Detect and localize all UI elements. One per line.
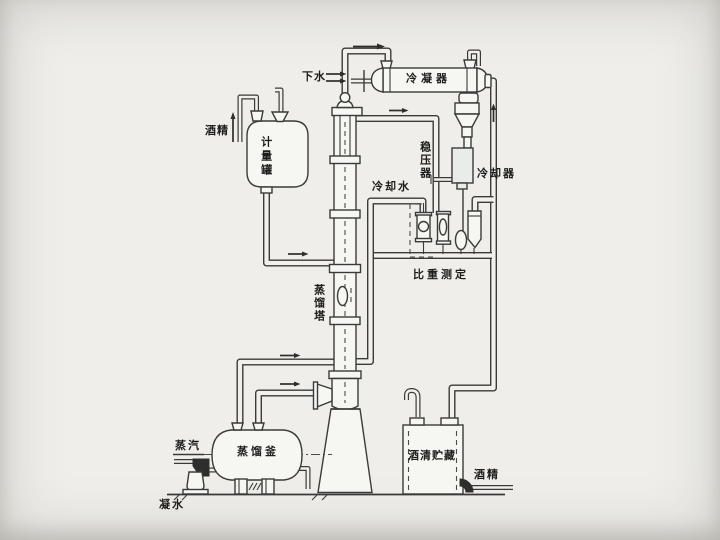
column-top-plate: [332, 108, 362, 116]
diagram-canvas: [0, 0, 720, 540]
flow-arrow: [280, 353, 301, 358]
column-base-pedestal: [314, 379, 373, 493]
reducer-stack: [455, 93, 479, 148]
column-sight-glass: [338, 287, 348, 306]
label-cooler: 冷却器: [477, 168, 516, 181]
label-steam: 蒸汽: [175, 440, 201, 453]
label-drain-water: 下水: [302, 71, 326, 84]
support-hatching: [249, 483, 261, 490]
label-storage: 酒清贮藏: [408, 450, 456, 463]
label-cooling-water: 冷却水: [372, 181, 411, 194]
flow-arrow-alcohol-feed: [231, 112, 236, 142]
column-top-knob: [340, 93, 350, 103]
label-condenser: 冷凝器: [406, 73, 451, 86]
flow-arrow: [280, 382, 301, 387]
steam-trap-pot: [187, 472, 204, 490]
flow-arrow: [389, 108, 409, 113]
label-column: 蒸馏塔: [312, 284, 325, 323]
label-alcohol-feed: 酒精: [205, 125, 229, 138]
sight-glass-window: [419, 222, 429, 232]
label-measuring-tank: 计量罐: [259, 136, 272, 178]
cooler-vessel: [452, 148, 473, 189]
ground-line: [167, 495, 505, 501]
measuring-tank-vessel: [247, 111, 308, 193]
label-condensate: 凝水: [159, 499, 185, 512]
flow-arrows: [231, 44, 497, 387]
label-kettle: 蒸馏釜: [237, 446, 279, 459]
gravity-measurement-devices: [410, 204, 481, 257]
label-stabilizer: 稳压器: [418, 141, 431, 180]
base-funnel-fitting: [317, 384, 332, 407]
process-flow-diagram: 下水 冷凝器 酒精 计量罐 稳压器 冷却水 冷却器 比重测定 蒸馏塔 蒸汽 蒸馏…: [0, 0, 720, 540]
distillation-column: [329, 93, 362, 379]
flow-arrow: [288, 252, 309, 257]
label-gravity-measure: 比重测定: [413, 269, 469, 282]
label-alcohol-out: 酒精: [474, 469, 500, 482]
